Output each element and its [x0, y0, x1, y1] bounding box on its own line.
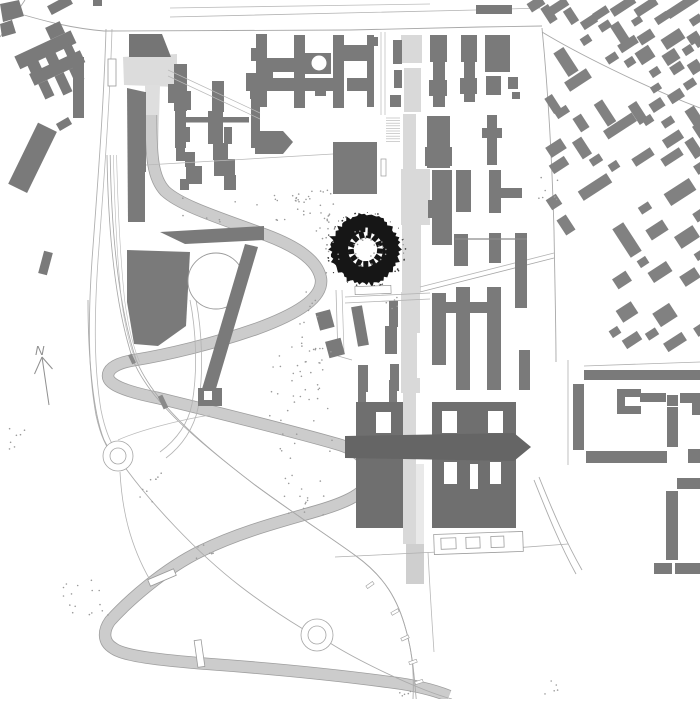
svg-text:N: N [35, 343, 45, 358]
